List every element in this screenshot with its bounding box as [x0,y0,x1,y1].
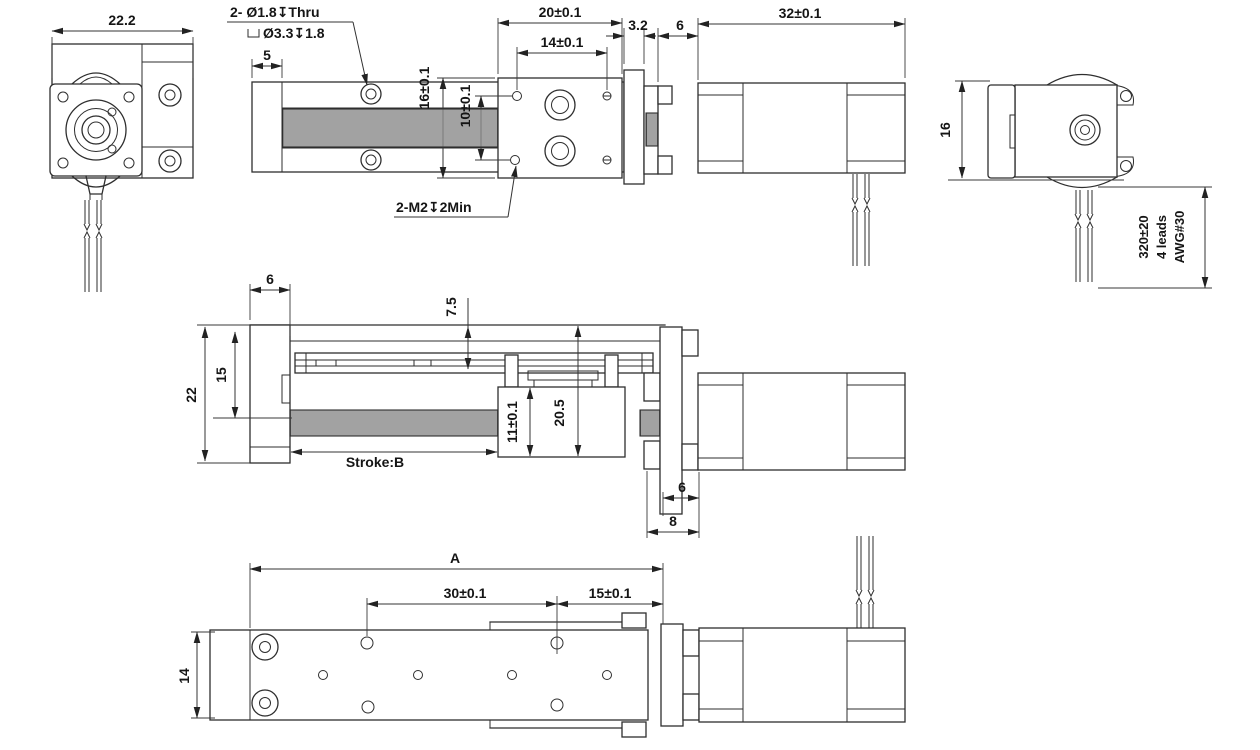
front-width-dim-label: 22.2 [108,12,135,28]
lead-gauge-label: AWG#30 [1172,211,1187,264]
lead-count-label: 4 leads [1154,215,1169,259]
lead-wires [1075,190,1093,282]
side-end-plate-dim-label: 6 [266,271,274,287]
stepper-motor-bottom [699,628,905,722]
lead-length-label: 320±20 [1136,215,1151,258]
thru-hole-callout: 2- Ø1.8↧Thru [230,4,320,20]
lead-wires [852,174,870,266]
guide-height-dim-label: 15 [213,367,229,383]
side-view: 6 7.5 15 22 Stroke:B 11±0.1 20.5 6 8 [183,271,905,538]
end-plate-dim-label: 5 [263,47,271,63]
stroke-dim-label: Stroke:B [346,454,404,470]
front-view: 22.2 [50,12,193,292]
tap-callout-label: 2-M2↧2Min [396,199,472,215]
hole-end-dim-label: 15±0.1 [589,585,632,601]
overall-height-dim-label: 22 [183,387,199,403]
overall-length-dim-label: A [450,550,460,566]
coupling-gap-dim-label: 6 [676,17,684,33]
plan-view: 2- Ø1.8↧Thru Ø3.3↧1.8 5 20±0.1 14±0.1 3.… [227,4,905,266]
motor-end-view: 16 320±20 4 leads AWG#30 [937,75,1212,289]
flange-ear-hole [1121,161,1132,172]
rail-height-dim-label: 7.5 [443,297,459,317]
flange-gap-dim-label: 6 [678,479,686,495]
block-height-dim-label: 20.5 [551,399,567,426]
carriage-block [498,78,622,178]
counterbore-callout: Ø3.3↧1.8 [263,25,325,41]
lead-wires [856,536,874,628]
motor-length-dim-label: 32±0.1 [779,5,822,21]
hole-row-span-dim-label: 10±0.1 [457,84,473,127]
stepper-motor-body [698,83,905,173]
carriage-width-dim-label: 16±0.1 [416,66,432,109]
adapter-plate-dim-label: 3.2 [628,17,648,33]
motor-flange [50,84,142,176]
adapter-plate [624,70,644,184]
end-plate [988,85,1015,178]
lead-screw-side [290,410,498,436]
plate-width-dim-label: 14 [176,668,192,684]
motor-body-side [1015,85,1117,177]
hole-span-dim-label: 30±0.1 [444,585,487,601]
flange-ear-hole [1121,91,1132,102]
linear-actuator-drawing: 22.2 2- Ø1.8↧Thru Ø3.3↧1.8 5 [0,0,1260,750]
bracket-depth-dim-label: 8 [669,513,677,529]
base-plate-bottom [210,630,648,720]
technical-drawing-page: 22.2 2- Ø1.8↧Thru Ø3.3↧1.8 5 [0,0,1260,750]
stepper-motor-side [698,373,905,470]
left-end-plate [250,325,290,463]
linear-guide-rail [295,353,653,373]
counterbore-icon [248,29,259,37]
nut-height-dim-label: 11±0.1 [504,401,520,443]
lead-wires [84,200,102,292]
motor-height-dim-label: 16 [937,122,953,138]
carriage-length-dim-label: 20±0.1 [539,4,582,20]
hole-span-dim-label: 14±0.1 [541,34,584,50]
motor-mount-plate-bottom [661,624,683,726]
bottom-view: A 30±0.1 15±0.1 14 [176,536,905,737]
motor-can-arc [1047,75,1117,86]
